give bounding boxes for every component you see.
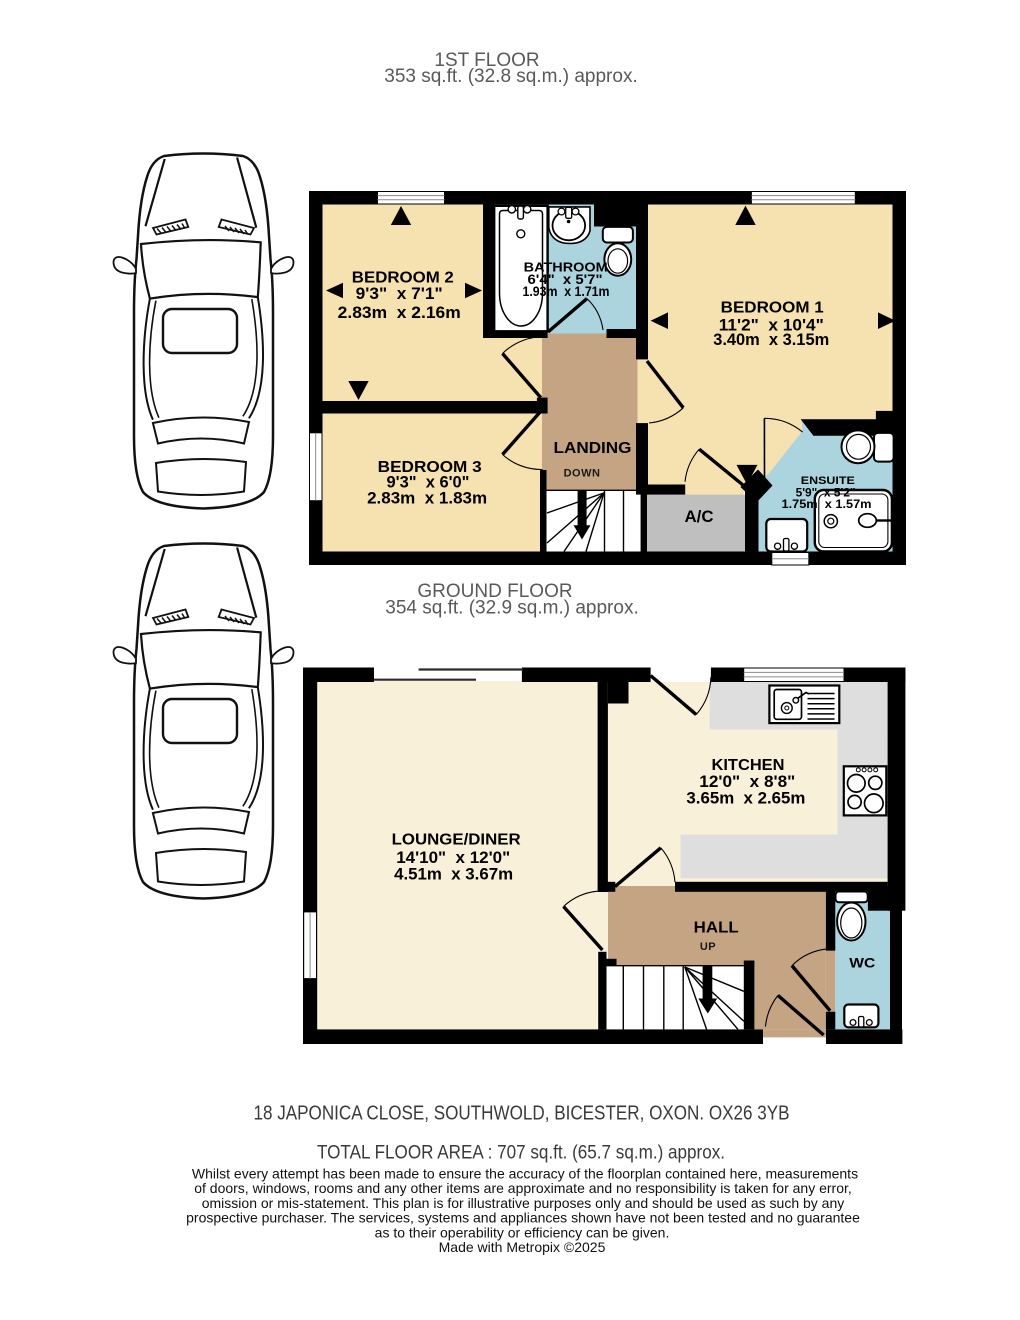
svg-text:1.75m x 1.57m: 1.75m x 1.57m — [782, 497, 872, 511]
svg-text:354 sq.ft. (32.9 sq.m.) approx: 354 sq.ft. (32.9 sq.m.) approx. — [385, 598, 638, 619]
svg-text:of doors, windows, rooms and a: of doors, windows, rooms and any other i… — [194, 1180, 852, 1196]
svg-text:Whilst every attempt has been: Whilst every attempt has been made to en… — [192, 1166, 858, 1182]
svg-text:353 sq.ft. (32.8 sq.m.) approx: 353 sq.ft. (32.8 sq.m.) approx. — [384, 66, 637, 87]
svg-text:LOUNGE/DINER: LOUNGE/DINER — [392, 831, 521, 848]
svg-text:DOWN: DOWN — [564, 468, 601, 480]
svg-text:TOTAL FLOOR AREA : 707 sq.ft.: TOTAL FLOOR AREA : 707 sq.ft. (65.7 sq.m… — [317, 1143, 725, 1164]
svg-text:Made with Metropix ©2025: Made with Metropix ©2025 — [439, 1239, 606, 1255]
svg-text:2.83m x 1.83m: 2.83m x 1.83m — [367, 489, 487, 508]
svg-text:3.65m x 2.65m: 3.65m x 2.65m — [686, 789, 805, 808]
svg-text:BEDROOM 1: BEDROOM 1 — [721, 299, 824, 316]
svg-text:1.93m x 1.71m: 1.93m x 1.71m — [523, 284, 610, 299]
svg-text:WC: WC — [849, 956, 875, 971]
svg-text:3.40m x 3.15m: 3.40m x 3.15m — [713, 330, 829, 349]
svg-text:omission or mis-statement. Thi: omission or mis-statement. This plan is … — [202, 1195, 845, 1211]
svg-text:HALL: HALL — [694, 920, 739, 937]
svg-text:4.51m x 3.67m: 4.51m x 3.67m — [394, 865, 513, 884]
svg-text:2.83m x 2.16m: 2.83m x 2.16m — [338, 303, 461, 322]
svg-text:as to their operability or eff: as to their operability or efficiency ca… — [375, 1224, 670, 1240]
svg-text:prospective purchaser. The ser: prospective purchaser. The services, sys… — [186, 1210, 860, 1226]
svg-text:18 JAPONICA CLOSE, SOUTHWOLD,: 18 JAPONICA CLOSE, SOUTHWOLD, BICESTER, … — [254, 1103, 790, 1125]
svg-text:UP: UP — [700, 941, 716, 953]
svg-text:LANDING: LANDING — [554, 440, 632, 457]
svg-text:A/C: A/C — [685, 507, 714, 526]
svg-text:9'3" x 7'1": 9'3" x 7'1" — [356, 284, 443, 303]
